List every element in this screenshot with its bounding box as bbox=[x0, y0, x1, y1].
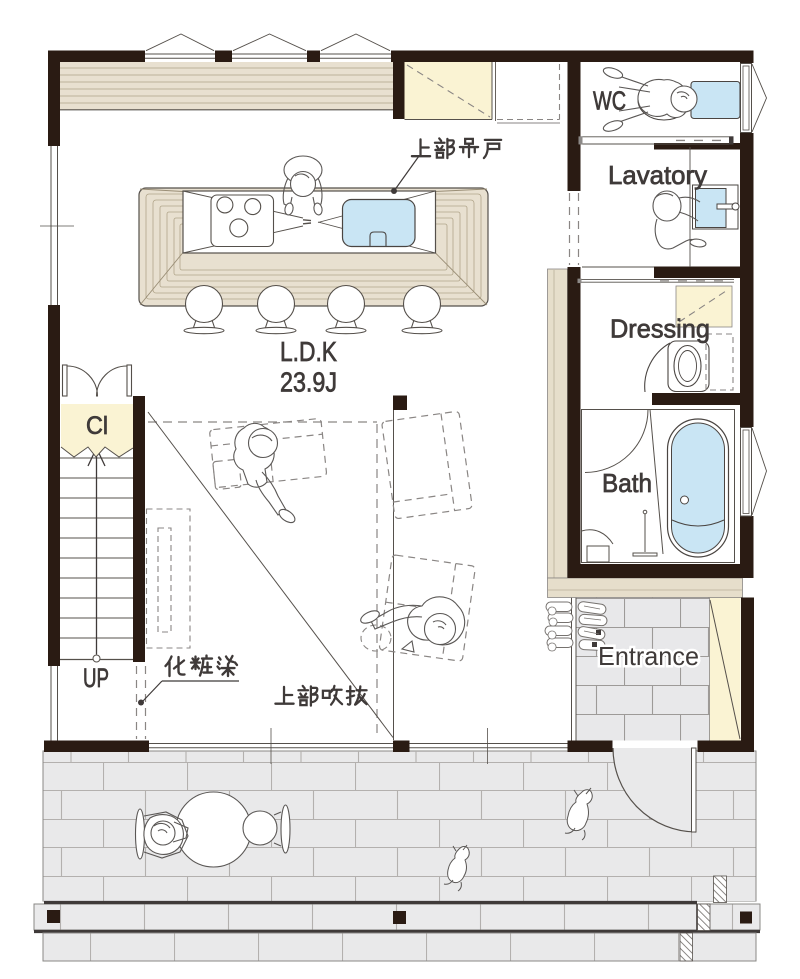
svg-text:23.9J: 23.9J bbox=[280, 367, 337, 398]
svg-text:Bath: Bath bbox=[602, 468, 652, 498]
svg-text:Lavatory: Lavatory bbox=[608, 160, 707, 190]
svg-text:L.D.K: L.D.K bbox=[280, 336, 337, 367]
svg-text:Cl: Cl bbox=[86, 412, 108, 440]
svg-text:Dressing: Dressing bbox=[610, 314, 710, 344]
svg-text:WC: WC bbox=[593, 86, 626, 116]
svg-text:UP: UP bbox=[83, 663, 109, 693]
svg-text:Entrance: Entrance bbox=[598, 641, 699, 671]
